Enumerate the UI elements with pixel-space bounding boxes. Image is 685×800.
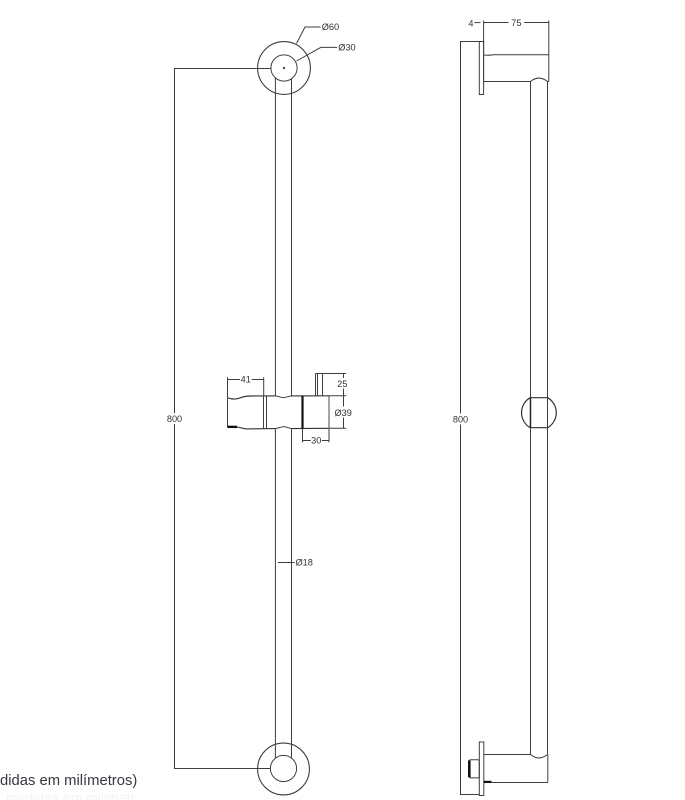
svg-text:800: 800 (167, 414, 182, 424)
svg-text:medidas em milimetr: medidas em milimetr (6, 790, 135, 800)
svg-text:41: 41 (241, 375, 251, 385)
svg-text:25: 25 (337, 379, 347, 389)
svg-text:(Medidas em milímetros): (Medidas em milímetros) (0, 773, 137, 789)
svg-text:75: 75 (511, 18, 521, 28)
svg-text:Ø60: Ø60 (322, 22, 339, 32)
svg-text:800: 800 (453, 415, 468, 425)
svg-text:30: 30 (311, 436, 321, 446)
svg-text:4: 4 (468, 18, 473, 28)
svg-text:Ø18: Ø18 (296, 558, 313, 568)
svg-text:Ø39: Ø39 (335, 408, 352, 418)
svg-text:Ø30: Ø30 (338, 43, 355, 53)
